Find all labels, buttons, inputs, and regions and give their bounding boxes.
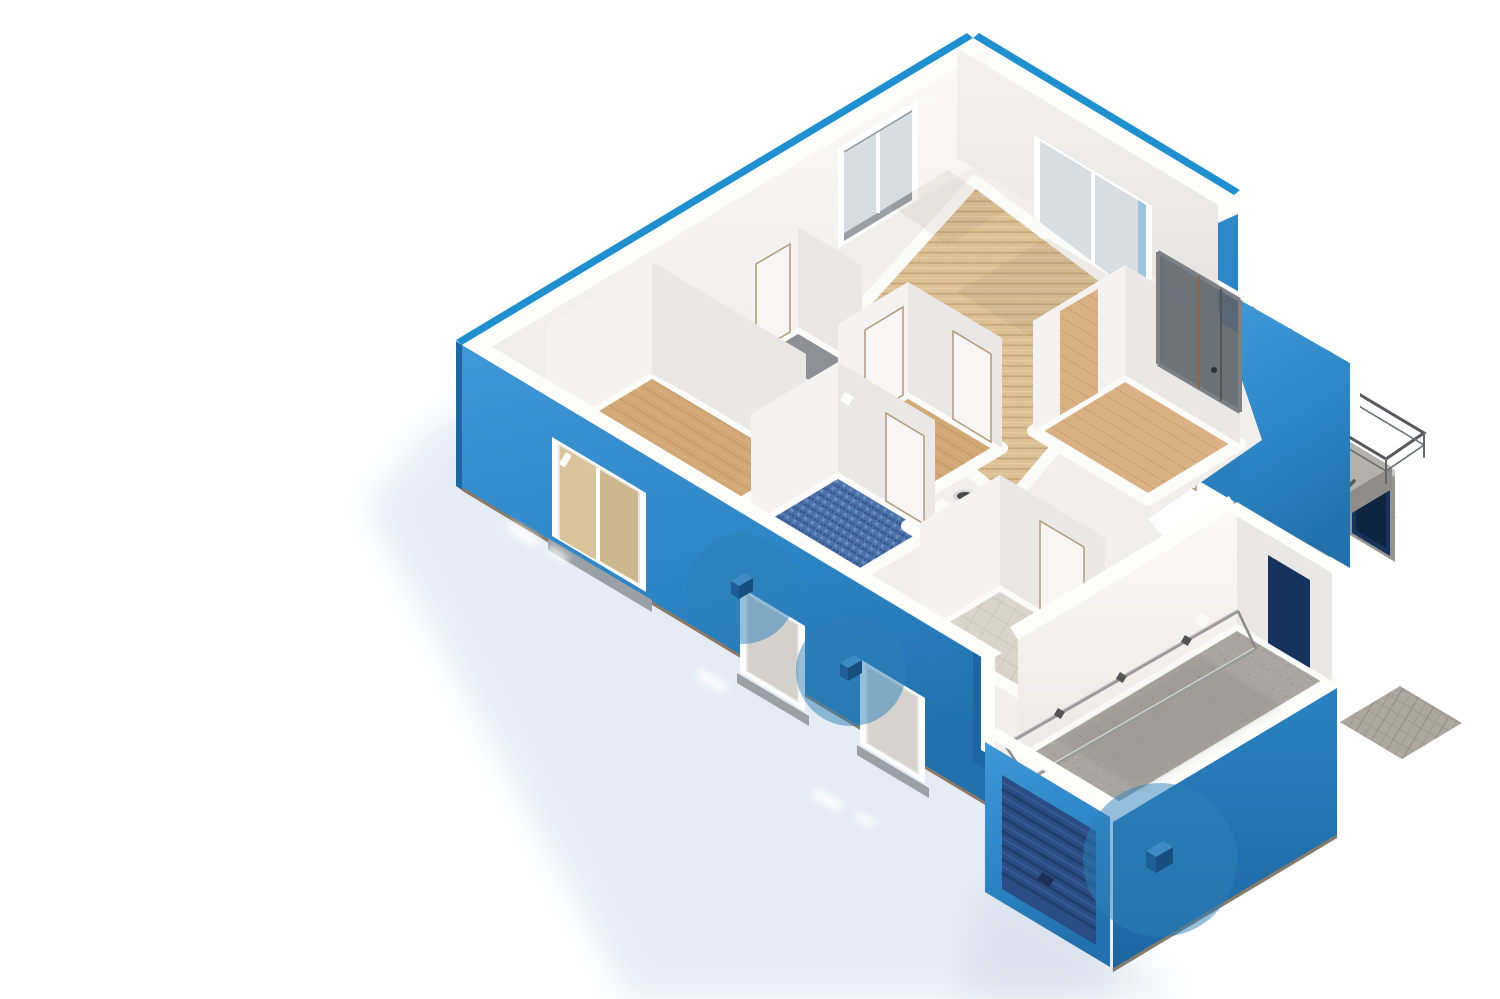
front-wall-corner-cap (981, 647, 995, 758)
scene-svg (0, 0, 1500, 999)
paver-pad-garage (1340, 686, 1462, 759)
blue-wall-end-cap (1350, 356, 1360, 430)
floorplan-render: { "scene": { "kind": "isometric 3D cutaw… (0, 0, 1500, 999)
open-doorway (1060, 289, 1098, 415)
front-wall-end-cap (456, 341, 462, 490)
door-handle (1211, 367, 1217, 373)
